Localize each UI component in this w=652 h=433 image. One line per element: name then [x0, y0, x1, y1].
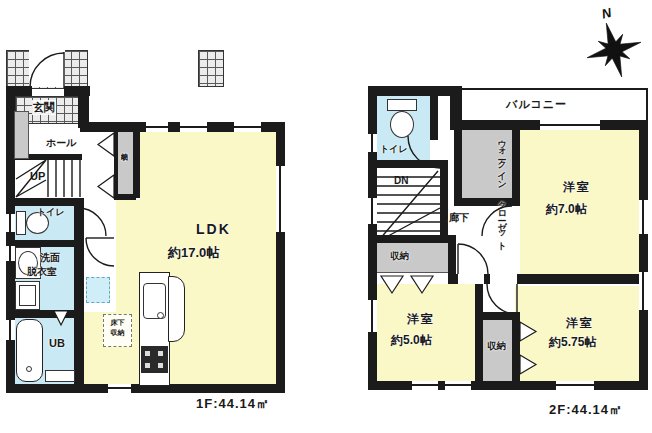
wall: [454, 198, 520, 206]
bedroom-main-label: 洋室: [563, 179, 591, 196]
window: [445, 381, 471, 390]
wall: [475, 284, 483, 386]
wall: [430, 96, 438, 140]
stairs-dn-label: DN: [394, 175, 408, 186]
wic-label-line1: ウォークイン: [497, 133, 507, 184]
window: [556, 381, 594, 390]
wall: [368, 235, 456, 243]
wall: [368, 381, 648, 390]
closet-a: [377, 243, 448, 272]
wic-label-line2: クローゼット: [497, 194, 507, 245]
window: [368, 300, 377, 332]
wall: [440, 160, 448, 243]
window: [540, 120, 600, 130]
wall: [517, 274, 648, 284]
corridor-label: 廊下: [449, 211, 469, 225]
wall: [484, 274, 490, 284]
closet-b-label: 収納: [487, 340, 506, 353]
bedroom-west-size: 約5.0帖: [391, 332, 432, 349]
wall: [512, 122, 520, 206]
window: [368, 134, 377, 152]
floor2-area-label: 2F:44.14㎡: [549, 401, 623, 419]
balcony-label: バルコニー: [506, 97, 567, 112]
wall: [448, 274, 458, 284]
wall: [512, 312, 520, 386]
wall: [639, 120, 648, 390]
walk-in-closet-label: ウォークイン クローゼット: [466, 133, 510, 197]
bedroom-west-label: 洋室: [407, 311, 435, 328]
closet-a-label: 収納: [390, 250, 409, 263]
toilet2f-label: トイレ: [380, 143, 408, 156]
window: [639, 200, 648, 234]
bedroom-main-size: 約7.0帖: [546, 201, 587, 218]
wall: [368, 160, 446, 168]
bedroom-east-label: 洋室: [566, 315, 594, 332]
bedroom-east-size: 約5.75帖: [549, 334, 596, 351]
window: [368, 198, 377, 224]
window: [412, 381, 438, 390]
toilet-tank-icon: [387, 99, 417, 111]
floor-plan-canvas: 床下 収納 玄関 ホール UP 収納 トイレ 洗面 脱衣室 UB LDK 約17…: [0, 0, 652, 433]
wall: [454, 122, 462, 206]
window: [639, 272, 648, 310]
wall: [368, 86, 462, 96]
floor2-plan: バルコニー トイレ DN 廊下 ウォークイン クローゼット 洋室 約7.0帖 収…: [0, 0, 652, 433]
toilet-bowl-icon: [390, 111, 414, 138]
